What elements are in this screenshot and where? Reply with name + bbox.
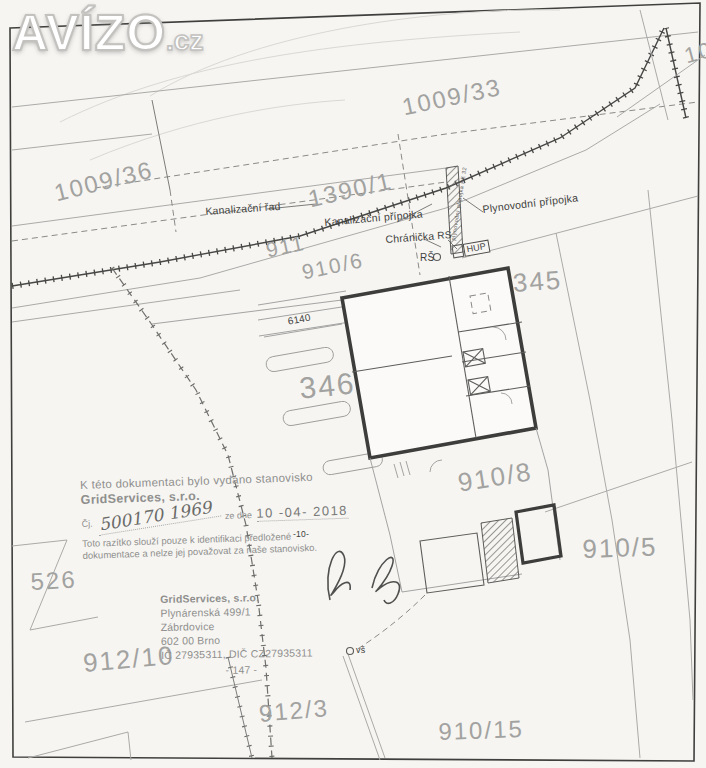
avizo-watermark: AVÍZO.cz [12,4,203,62]
stamp-cj-label: Čj. [81,519,92,529]
vs-shaft-symbol [347,648,354,655]
building-outline [342,268,536,458]
label-rs-shaft: RŠ [420,253,434,263]
stamp-ze-dne: ze dne [225,510,252,521]
parcel-label-910-15: 910/15 [438,717,524,744]
hatched-ramp [481,518,519,583]
address-code: - 147 - [161,662,321,679]
avizo-logo-tld: .cz [166,25,203,56]
address-ids: IČ 27935311, DIČ CZ27935311 [161,645,321,662]
avizo-logo-text: AVÍZO [12,5,166,61]
parcel-label-10-partial: 10 [682,39,706,68]
label-vs: vš [356,646,365,655]
scanned-site-plan: 1009/33 10 1009/36 1390/1 911 910/6 345 … [0,0,706,768]
parcel-label-346: 346 [298,368,357,404]
parcel-label-912-3: 912/3 [258,696,330,726]
parcel-label-910-5: 910/5 [582,533,658,562]
signature [328,551,400,603]
garage-outline [516,505,561,563]
sewer-shaft-symbol [434,254,441,261]
parcel-label-345: 345 [512,267,563,296]
parcel-label-526: 526 [30,568,77,594]
pool-outline [420,533,484,593]
approval-stamp: K této dokumentaci bylo vydáno stanovisk… [80,469,383,563]
company-address-block: GridServices, s.r.o. Plynárenská 499/1 Z… [160,589,321,678]
stamp-date: 10 -04- 2018 [256,503,348,522]
parcel-boundaries-left [152,100,176,232]
